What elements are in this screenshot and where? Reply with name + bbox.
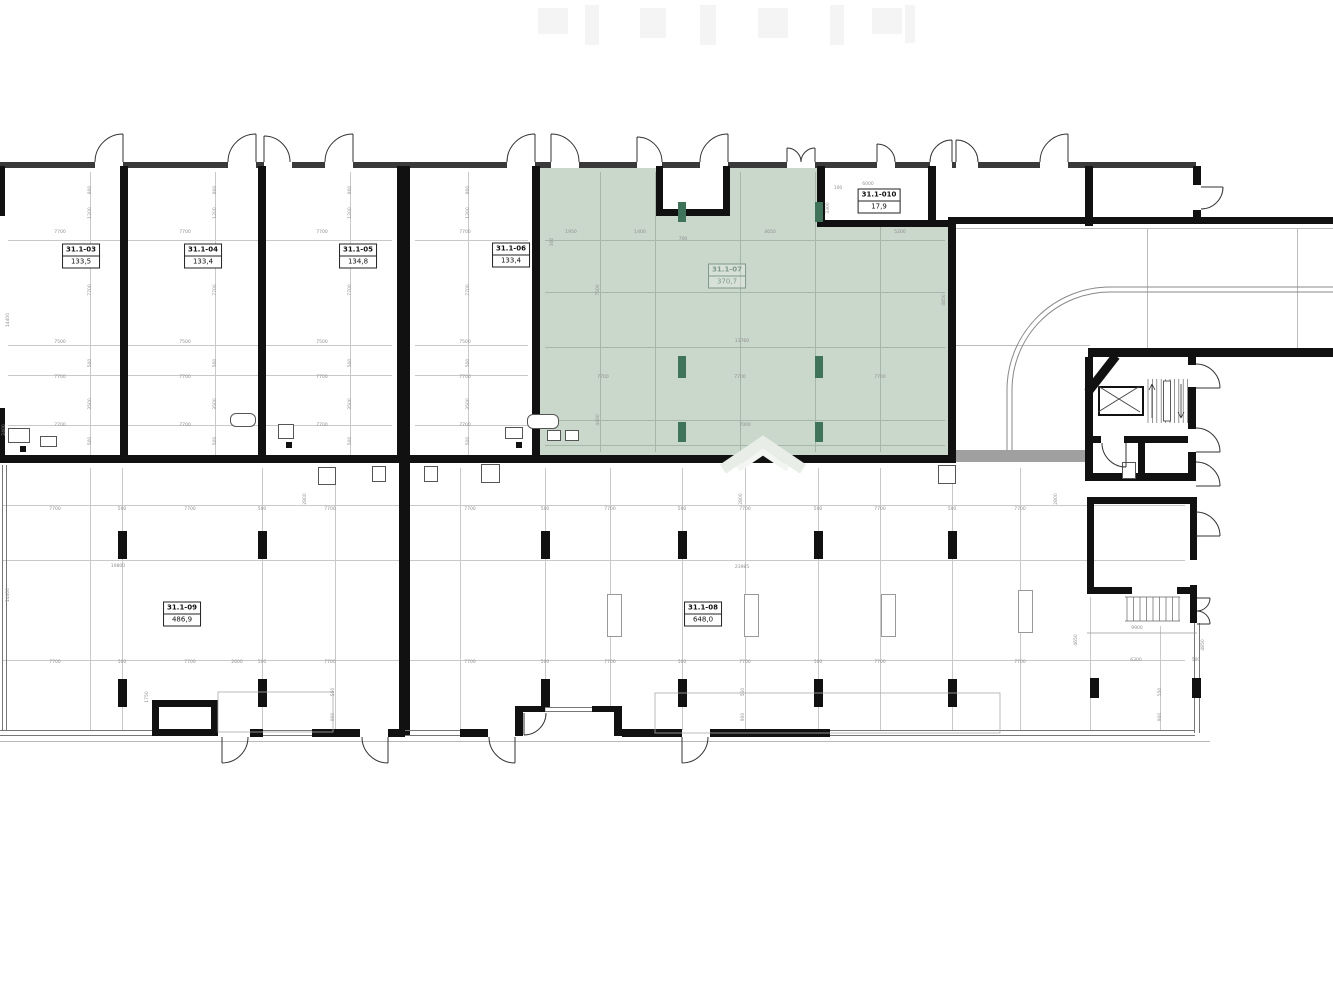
room-area: 486,9 (164, 615, 200, 626)
shape (489, 737, 515, 763)
room-number: 31.1-08 (685, 603, 721, 615)
shape (95, 134, 123, 162)
room-number: 31.1-010 (859, 190, 900, 202)
shape (637, 137, 662, 162)
shape (1012, 292, 1333, 450)
elevator-x-icon (1098, 386, 1140, 412)
shape (325, 134, 353, 162)
shape (507, 134, 535, 162)
logo-watermark (723, 442, 803, 469)
shape (1196, 462, 1220, 486)
door-swing-arcs (95, 134, 1223, 763)
shape (682, 737, 708, 763)
plan-symbols (0, 0, 1333, 1000)
room-area: 370,7 (709, 277, 745, 288)
room-tag-31.1-04[interactable]: 31.1-04133,4 (184, 244, 222, 269)
ramp-guides (1007, 287, 1333, 450)
shape (700, 134, 728, 162)
exterior-stairs (1087, 597, 1197, 633)
room-number: 31.1-06 (493, 244, 529, 256)
shape (1102, 443, 1126, 467)
room-tag-31.1-07[interactable]: 31.1-07370,7 (708, 264, 746, 289)
shape (1196, 512, 1220, 536)
shape (655, 693, 1000, 733)
shape (362, 737, 388, 763)
room-area: 17,9 (859, 202, 900, 213)
shape (930, 140, 952, 162)
shape (218, 692, 333, 732)
room-tag-31.1-08[interactable]: 31.1-08648,0 (684, 602, 722, 627)
room-tag-31.1-06[interactable]: 31.1-06133,4 (492, 243, 530, 268)
room-area: 133,4 (493, 256, 529, 267)
shape (1040, 134, 1068, 162)
shape (787, 148, 815, 162)
shape (524, 713, 546, 735)
shape (877, 144, 895, 162)
room-area: 648,0 (685, 615, 721, 626)
shape (1196, 364, 1220, 388)
thin-partition-outlines (218, 692, 1000, 733)
room-number: 31.1-07 (709, 265, 745, 277)
room-tag-31.1-010[interactable]: 31.1-01017,9 (858, 189, 901, 214)
shape (1088, 356, 1116, 392)
room-area: 133,4 (185, 257, 221, 268)
shape (222, 737, 248, 763)
room-area: 133,5 (63, 257, 99, 268)
shape (1197, 598, 1210, 624)
room-tag-31.1-03[interactable]: 31.1-03133,5 (62, 244, 100, 269)
room-number: 31.1-04 (185, 245, 221, 257)
core-chamfer (1088, 356, 1116, 392)
floor-plan: 31.1-03133,531.1-04133,431.1-05134,831.1… (0, 0, 1333, 1000)
shape (228, 134, 256, 162)
shape (1196, 428, 1220, 452)
shape (956, 140, 978, 162)
shape (1007, 287, 1333, 450)
shape (264, 136, 290, 162)
room-area: 134,8 (340, 257, 376, 268)
room-number: 31.1-03 (63, 245, 99, 257)
room-number: 31.1-05 (340, 245, 376, 257)
shape (1201, 187, 1223, 209)
room-number: 31.1-09 (164, 603, 200, 615)
shape (551, 134, 579, 162)
core-stairs (1148, 379, 1188, 423)
shape (1164, 381, 1171, 421)
room-tag-31.1-05[interactable]: 31.1-05134,8 (339, 244, 377, 269)
room-tag-31.1-09[interactable]: 31.1-09486,9 (163, 602, 201, 627)
shape (1127, 597, 1179, 621)
